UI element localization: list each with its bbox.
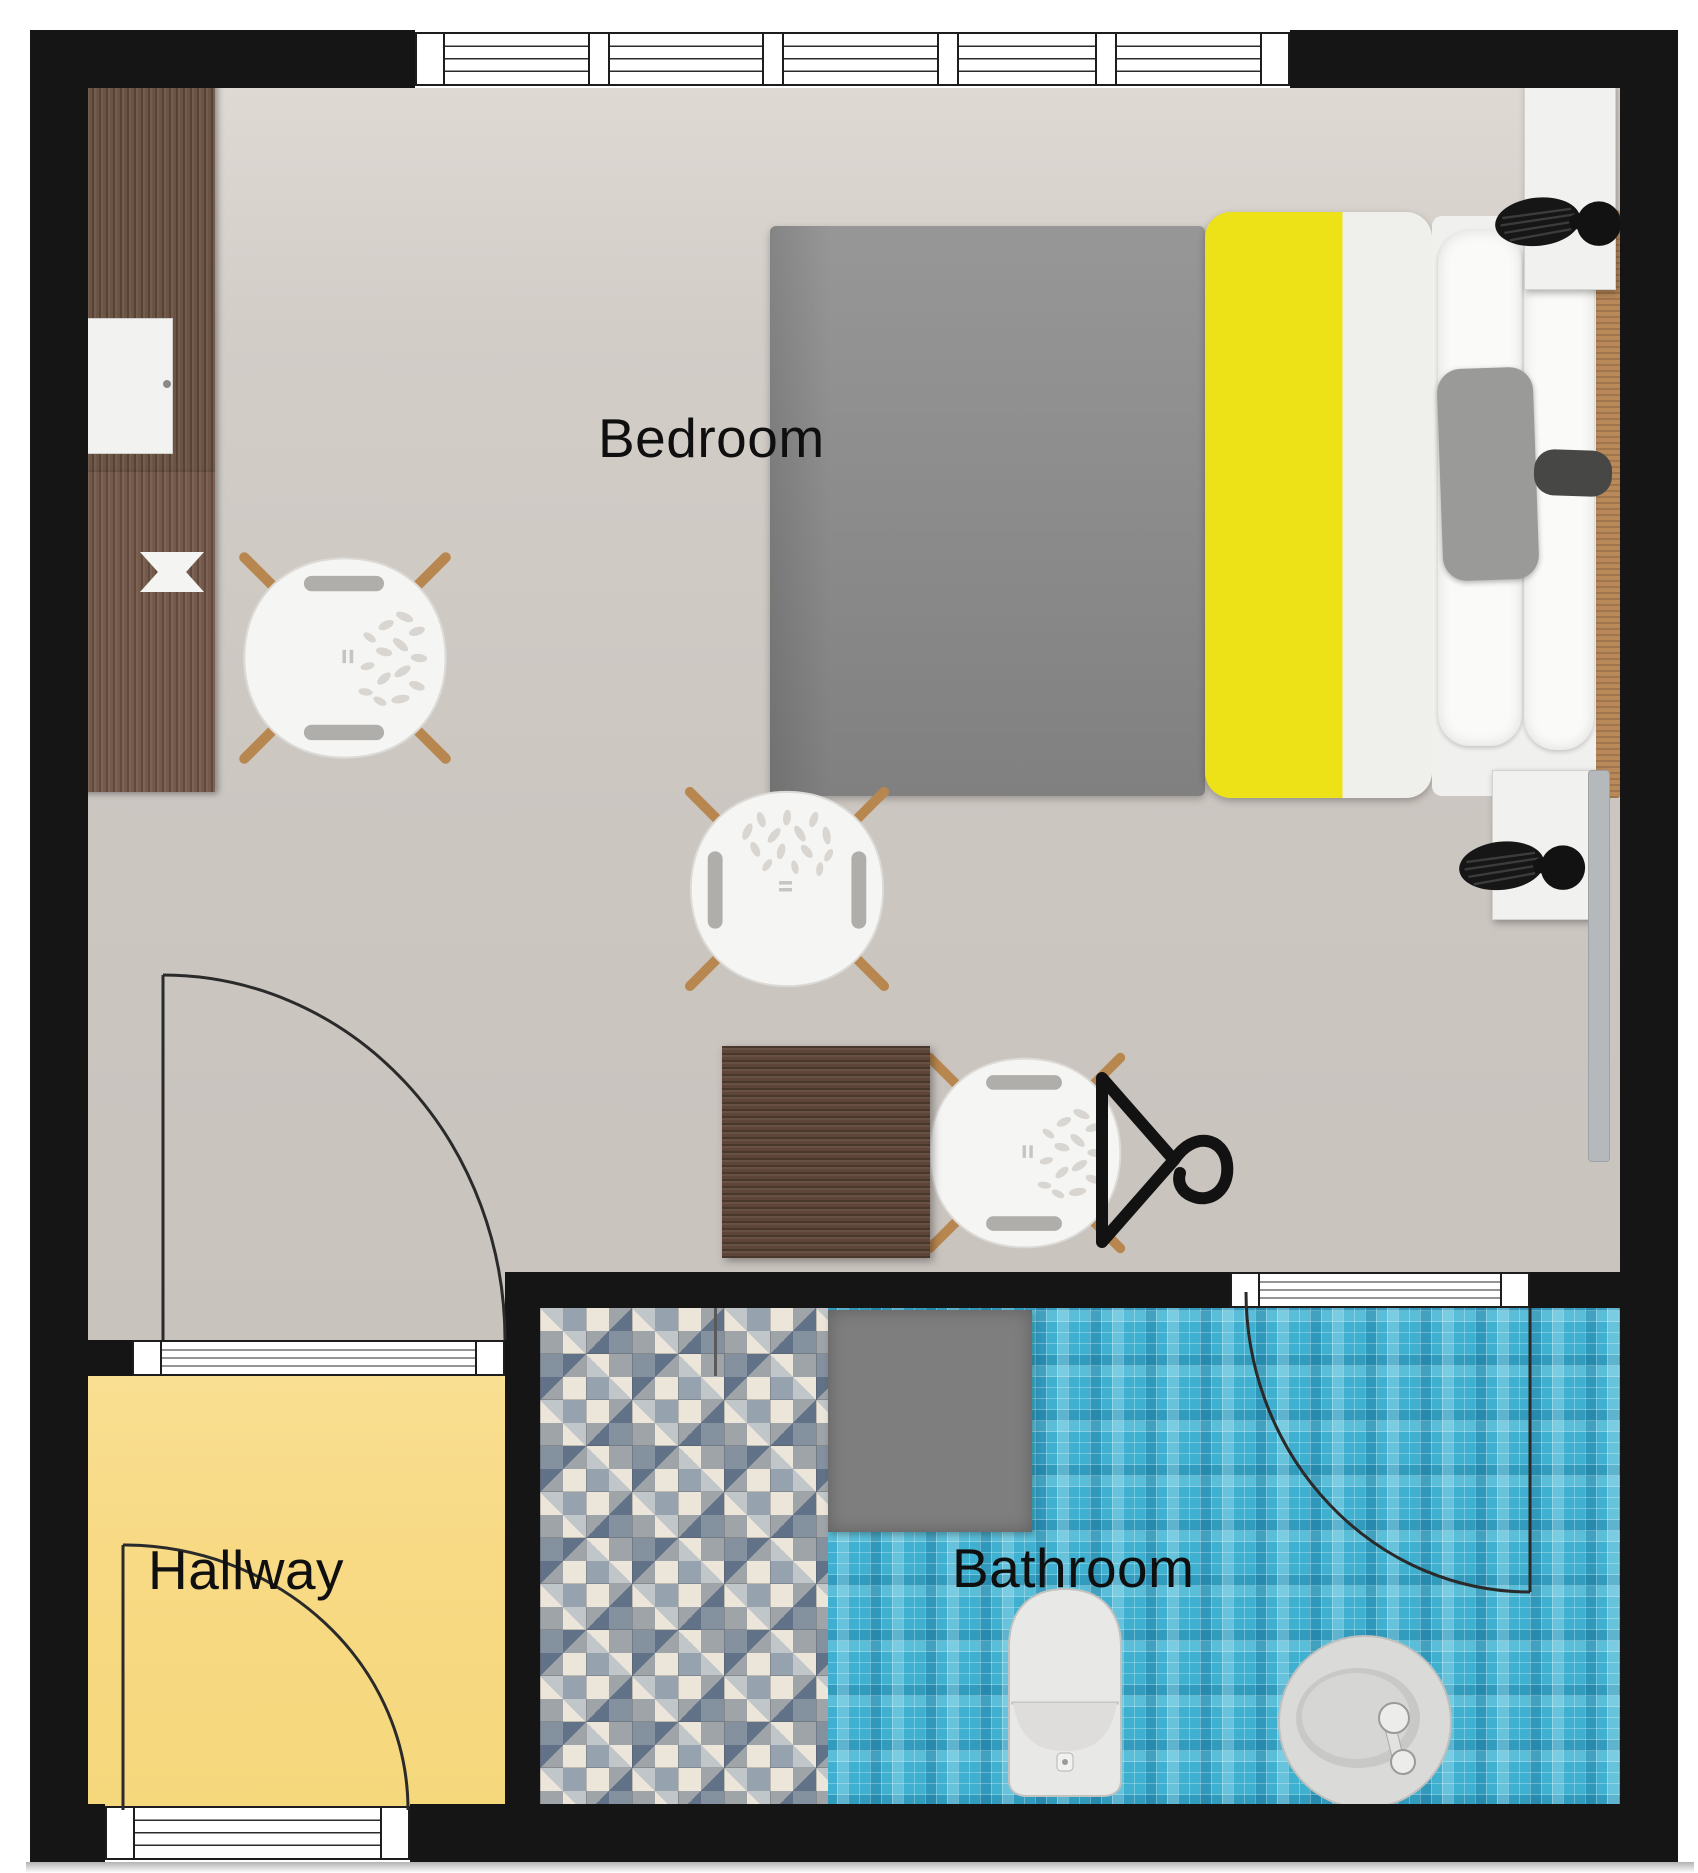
bedroom-label: Bedroom — [598, 406, 825, 470]
bathroom-label: Bathroom — [952, 1536, 1194, 1600]
side-table — [722, 1046, 930, 1258]
window-cap-icon — [1260, 32, 1290, 86]
shower-tiles — [540, 1308, 828, 1806]
lounge-chair — [918, 1046, 1132, 1260]
wall — [540, 1272, 1230, 1308]
cabinet-knob-icon — [163, 380, 171, 388]
window-cap-icon — [475, 1340, 505, 1376]
pillow-gray — [1436, 366, 1539, 581]
window — [415, 32, 1290, 86]
nightstand — [1492, 770, 1602, 920]
wall — [30, 30, 88, 1862]
wall — [1530, 1272, 1620, 1308]
bed-blanket — [770, 226, 1205, 796]
floor-plan: Bedroom Hallway Bathroom — [0, 0, 1698, 1873]
wall — [505, 1272, 540, 1804]
window-cap-icon — [415, 32, 445, 86]
bathroom-doorway — [1230, 1272, 1530, 1308]
pillow-dark — [1533, 449, 1613, 498]
window-cap-icon — [380, 1806, 410, 1860]
shower-screen — [714, 1308, 717, 1376]
window-cap-icon — [132, 1340, 162, 1376]
window-mullion-icon — [588, 32, 610, 86]
shadow — [26, 1862, 1694, 1873]
bath-mat — [828, 1310, 1032, 1532]
wall — [88, 1340, 132, 1376]
sink-icon — [1270, 1630, 1460, 1810]
bedroom-hallway-doorway — [132, 1340, 505, 1376]
desk-chair — [232, 545, 458, 771]
hallway-entry-window — [105, 1806, 410, 1860]
wall — [410, 1804, 1678, 1862]
nightstand — [1524, 82, 1616, 290]
wall — [30, 1804, 105, 1862]
bed-duvet — [1205, 212, 1432, 798]
window-cap-icon — [105, 1806, 135, 1860]
window-mullion-icon — [1095, 32, 1117, 86]
window-cap-icon — [1500, 1272, 1530, 1308]
window-mullion-icon — [937, 32, 959, 86]
window-cap-icon — [1230, 1272, 1260, 1308]
hallway-label: Hallway — [148, 1538, 344, 1602]
bed-frame — [1596, 210, 1620, 798]
radiator — [1588, 770, 1610, 1162]
window-mullion-icon — [762, 32, 784, 86]
wall — [1620, 30, 1678, 1862]
toilet-icon — [995, 1585, 1135, 1800]
lounge-chair — [678, 780, 896, 998]
